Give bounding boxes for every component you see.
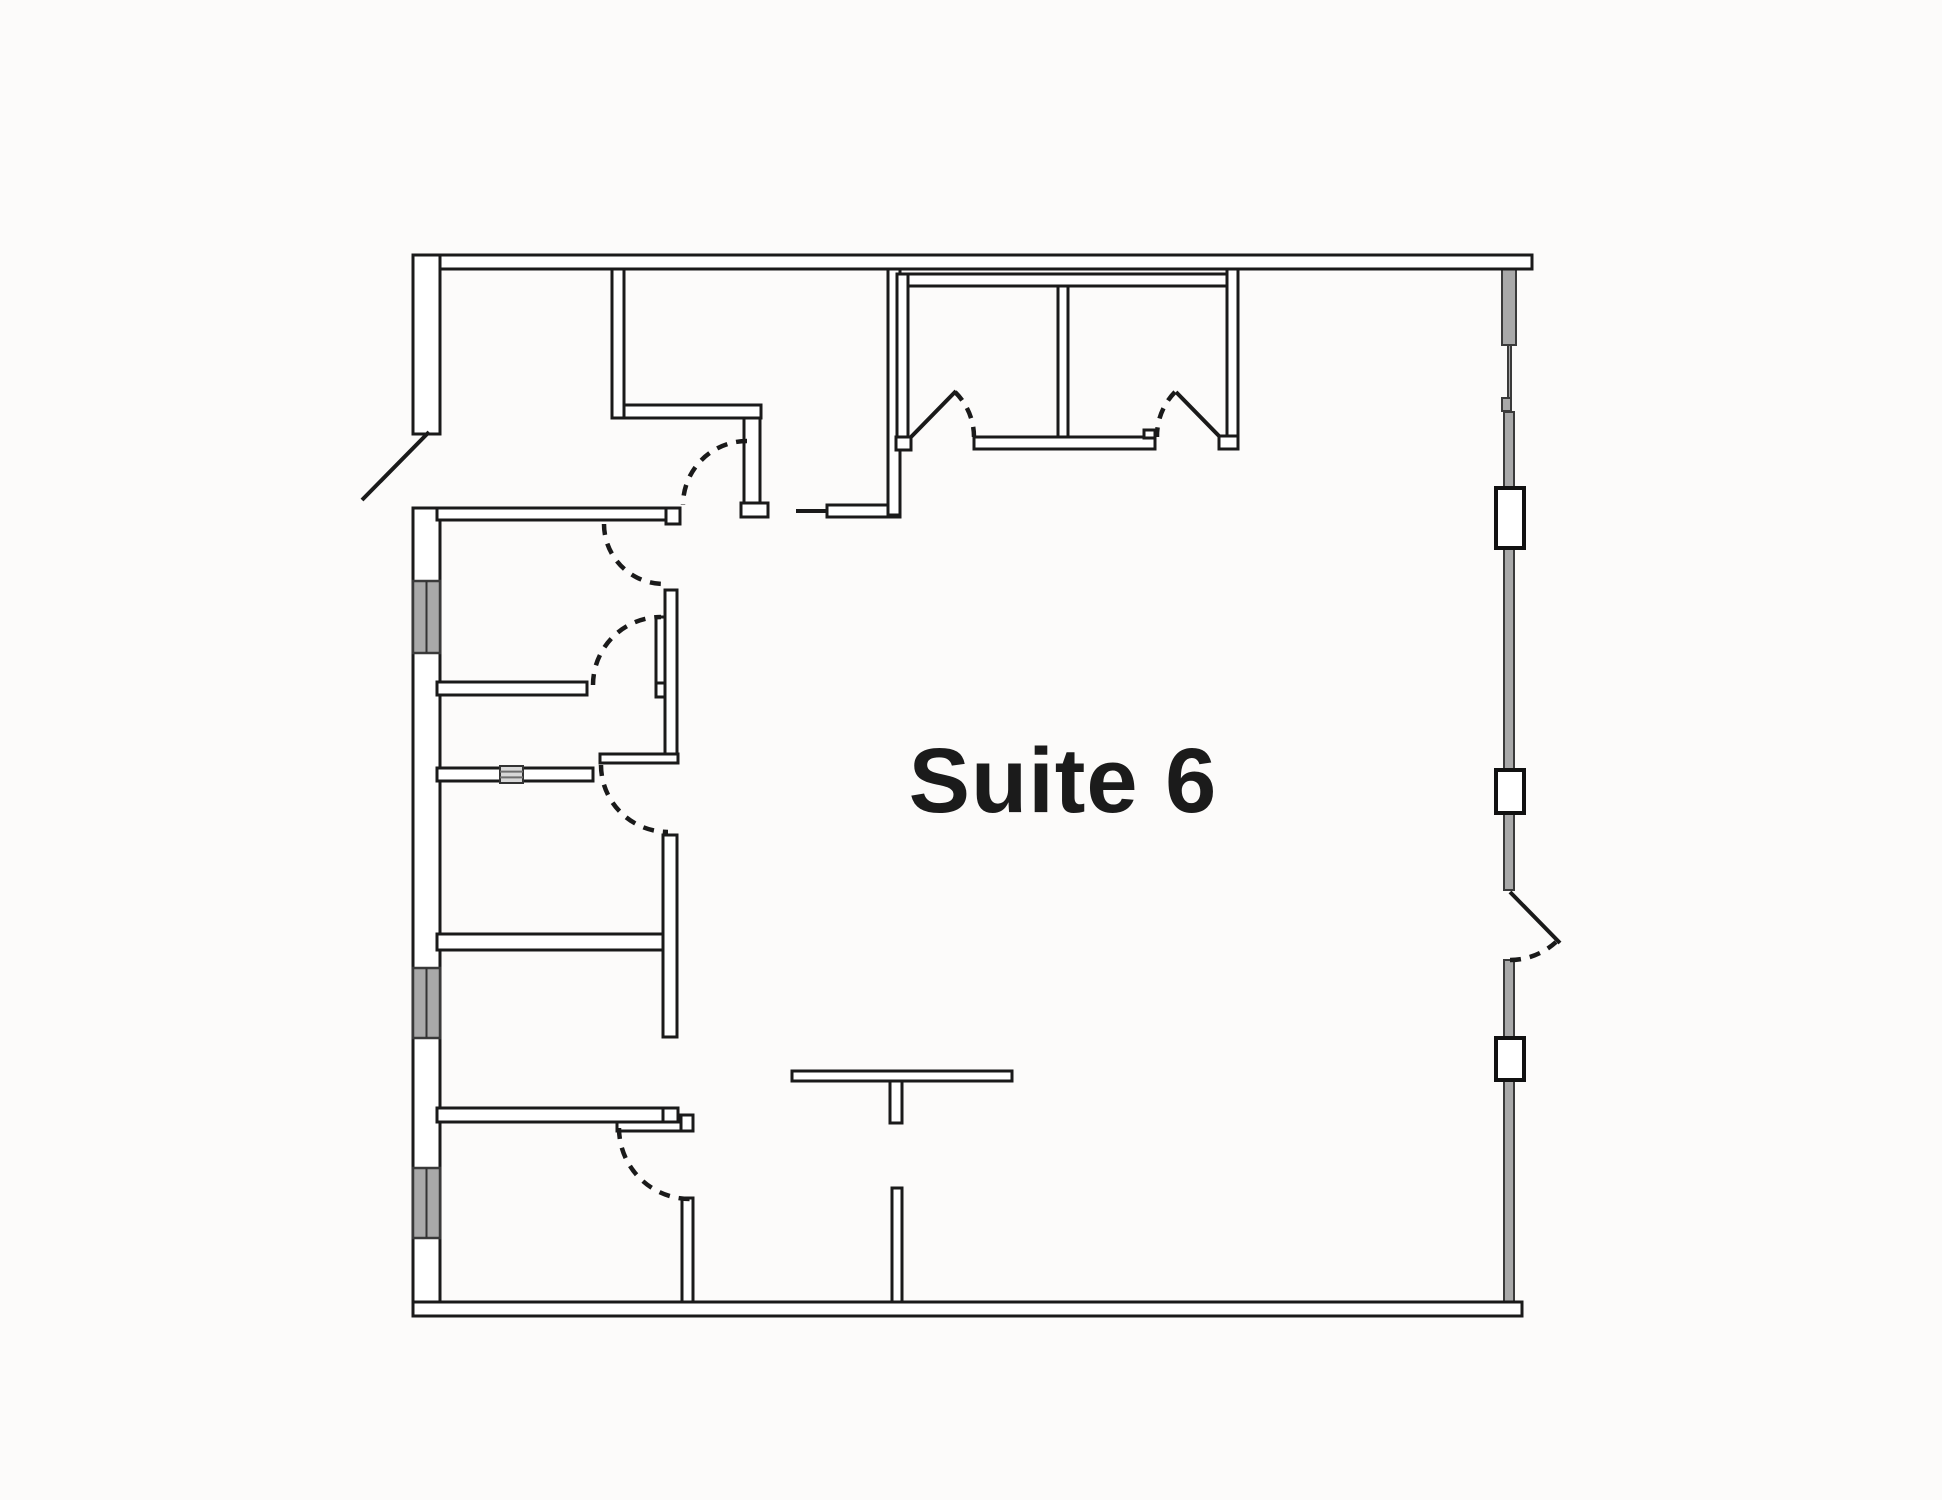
room-d-right-wall-foot (1219, 436, 1238, 449)
right-mullion-3 (1496, 1038, 1524, 1080)
right-exit-door-leaf (1510, 892, 1560, 943)
right-glazing-2 (1504, 412, 1514, 488)
left-door2-leaf (600, 754, 678, 763)
bottom-stub-wall (892, 1188, 902, 1302)
top-wall (413, 255, 1532, 269)
rooms-cd-top-wall (897, 274, 1237, 286)
left-door3-swing (619, 1128, 690, 1199)
left-room4-bottom-wall (437, 1108, 663, 1122)
left-cluster-east-wall-upper (665, 590, 677, 760)
vestibule-door-swing (683, 441, 747, 505)
right-glazing-4 (1504, 813, 1514, 890)
left-door1-swing (593, 617, 661, 685)
right-glazing-6 (1504, 1080, 1514, 1302)
room-d-right-wall (1227, 269, 1238, 437)
room-c-door-swing (955, 392, 974, 437)
left-door2-swing (601, 765, 668, 832)
vestibule-wall-vertical (744, 418, 760, 504)
left-door3-leaf-cap (681, 1115, 693, 1131)
left-room3-bottom-wall (437, 934, 663, 950)
right-glazing-5 (1504, 960, 1514, 1038)
entry-door-leaf (362, 432, 429, 500)
door-leaf-layer (362, 391, 1560, 943)
room-c-left-wall (897, 274, 908, 437)
right-exit-door-swing (1510, 942, 1556, 960)
left-wall-upper (413, 255, 440, 434)
left-room4-bottom-jamb (663, 1108, 678, 1122)
rooms-cd-bottom-notch (1144, 430, 1155, 438)
vestibule-wall-foot (741, 503, 768, 517)
rooms-cd-divider-wall (1058, 286, 1068, 437)
floor-plan-canvas: Suite 6 (0, 0, 1942, 1500)
corridor-top-wall-jamb (666, 508, 680, 524)
vestibule-wall-horizontal (624, 405, 761, 418)
right-glazing-tick (1502, 398, 1511, 411)
room-d-door-swing (1157, 392, 1175, 437)
room-bc-door-jamb (896, 437, 911, 450)
left-room1-bottom-wall (437, 682, 587, 695)
corridor-top-wall (437, 508, 680, 520)
room-d-door-leaf (1176, 392, 1220, 437)
room-c-door-leaf (911, 391, 956, 437)
right-mullion-1 (1496, 488, 1524, 548)
rooms-cd-bottom-wall (974, 437, 1155, 449)
left-cluster-east-wall-lower (682, 1198, 693, 1302)
left-room1-entry-swing (604, 524, 664, 584)
right-mullion-2 (1496, 770, 1524, 813)
floor-plan: Suite 6 (0, 0, 1942, 1500)
right-glazing-3 (1504, 548, 1514, 770)
right-glazing-1 (1502, 269, 1516, 345)
vent-panel (500, 766, 523, 783)
t-wall-stem (890, 1081, 902, 1123)
left-cluster-east-wall-mid (663, 835, 677, 1037)
suite-label: Suite 6 (909, 730, 1218, 832)
bottom-wall (413, 1302, 1522, 1316)
room-a-right-wall (612, 269, 624, 418)
